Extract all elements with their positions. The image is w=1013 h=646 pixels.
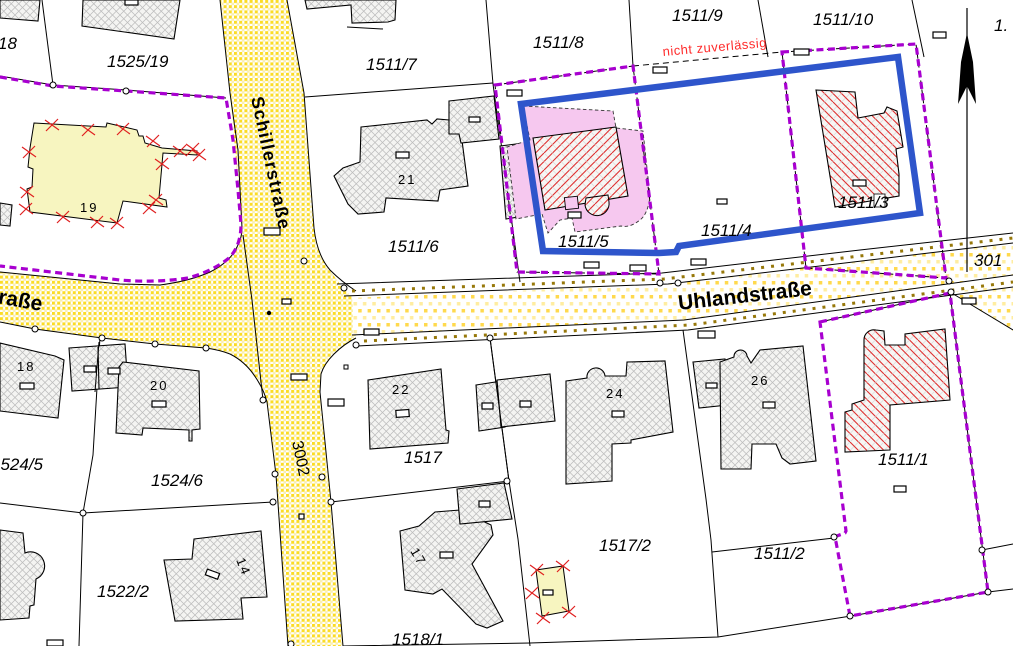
svg-text:22: 22	[392, 382, 410, 397]
svg-text:18: 18	[0, 34, 17, 53]
svg-text:19: 19	[80, 200, 98, 215]
svg-text:1518/1: 1518/1	[392, 630, 444, 646]
svg-text:1511/10: 1511/10	[813, 10, 874, 29]
svg-text:301: 301	[974, 251, 1002, 270]
svg-text:1511/8: 1511/8	[533, 33, 584, 52]
svg-text:26: 26	[751, 373, 769, 388]
svg-text:1511/5: 1511/5	[558, 232, 609, 251]
svg-text:1522/2: 1522/2	[97, 582, 150, 601]
svg-text:1511/7: 1511/7	[366, 55, 417, 74]
svg-text:1525/19: 1525/19	[107, 52, 169, 71]
svg-text:1524/6: 1524/6	[151, 471, 204, 490]
svg-text:1511/2: 1511/2	[754, 544, 805, 563]
svg-text:18: 18	[17, 359, 35, 374]
svg-text:1524/5: 1524/5	[0, 455, 44, 474]
svg-text:24: 24	[606, 386, 624, 401]
svg-text:1511/1: 1511/1	[878, 450, 929, 469]
svg-text:20: 20	[150, 378, 168, 393]
svg-text:1517/2: 1517/2	[599, 536, 652, 555]
svg-text:1.: 1.	[994, 16, 1008, 35]
svg-text:1511/3: 1511/3	[838, 193, 889, 212]
svg-text:1511/9: 1511/9	[672, 6, 723, 25]
svg-text:1511/4: 1511/4	[701, 221, 752, 240]
svg-text:21: 21	[398, 172, 416, 187]
svg-text:1511/6: 1511/6	[388, 237, 439, 256]
svg-text:1517: 1517	[404, 448, 442, 467]
